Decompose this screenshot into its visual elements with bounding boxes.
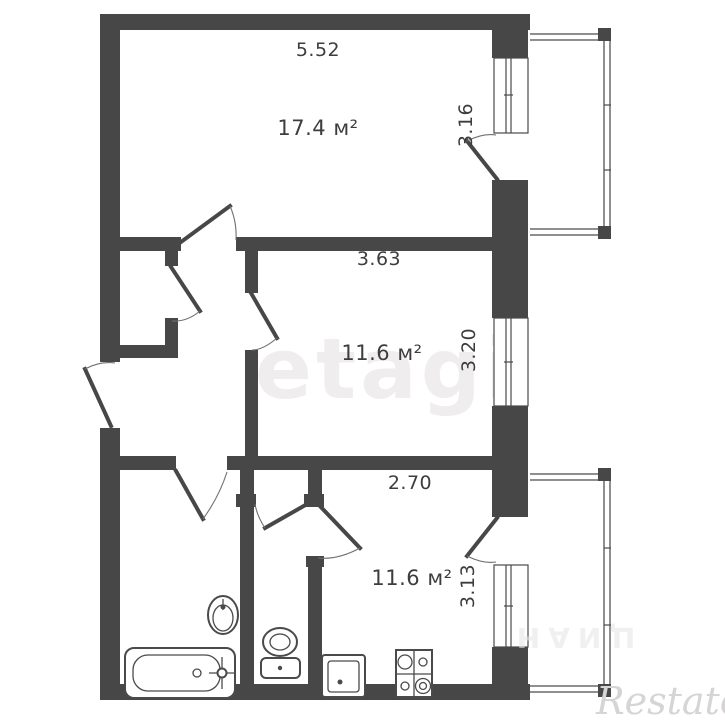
- bathtub: [125, 648, 235, 698]
- door-closet: [171, 267, 200, 321]
- door-kitchen: [317, 503, 360, 558]
- label-top-room-area: 17.4 м²: [277, 116, 358, 140]
- balcony-corner-post: [598, 226, 611, 239]
- label-kitchen-width: 2.70: [388, 472, 432, 494]
- door-wc: [255, 503, 309, 528]
- label-top-room-width: 5.52: [296, 39, 340, 61]
- door-top-room: [181, 206, 236, 242]
- interior-walls: [120, 237, 492, 684]
- window-top-room: [494, 58, 528, 133]
- label-middle-room-width: 3.63: [357, 248, 401, 270]
- label-kitchen-height: 3.13: [457, 564, 479, 608]
- label-top-room-height: 3.16: [455, 103, 477, 147]
- balcony-top: [530, 28, 611, 239]
- kitchen-sink: [322, 655, 365, 697]
- stove: [396, 650, 432, 697]
- balcony-corner-post: [598, 28, 611, 41]
- label-middle-room-area: 11.6 м²: [341, 341, 422, 365]
- balcony-corner-post: [598, 468, 611, 481]
- label-middle-room-height: 3.20: [458, 328, 480, 372]
- balcony-bottom: [530, 468, 611, 697]
- door-bathroom: [176, 471, 227, 519]
- door-balcony-kitchen: [467, 518, 497, 562]
- watermark-cian: ЦИАН: [509, 621, 636, 654]
- toilet: [261, 628, 300, 678]
- watermark-restate: Restate: [595, 679, 725, 723]
- floor-plan: etagi: [0, 0, 725, 725]
- bathroom-sink: [208, 596, 238, 634]
- door-entrance: [85, 363, 115, 426]
- label-kitchen-area: 11.6 м²: [371, 566, 452, 590]
- window-middle-room: [494, 318, 528, 406]
